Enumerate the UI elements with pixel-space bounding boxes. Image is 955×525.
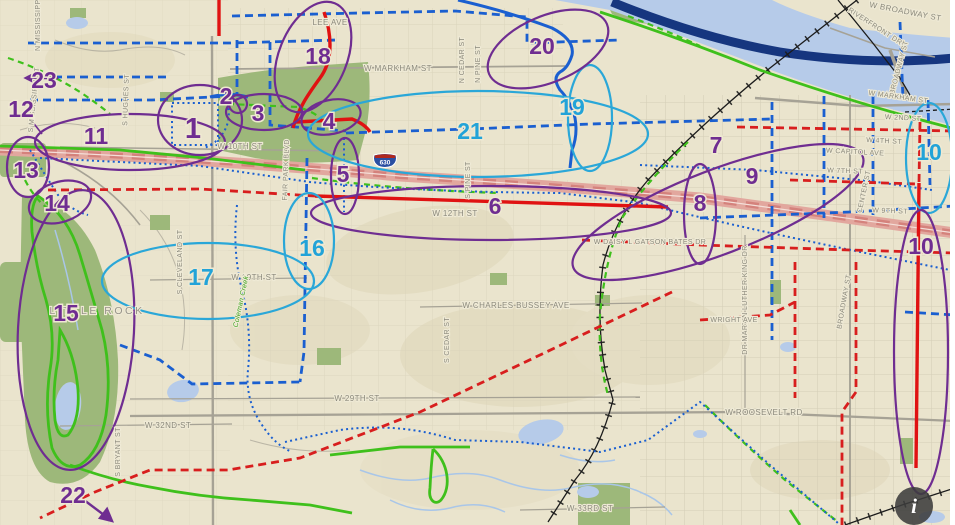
street-label-s-cedar-st: S CEDAR ST xyxy=(444,317,451,363)
street-label-w-32nd-st: W 32ND ST xyxy=(145,421,191,430)
street-label-n-pine-st: N PINE ST xyxy=(475,45,482,83)
street-label-w-10th-st: W 10TH ST xyxy=(217,142,262,151)
info-button[interactable]: i xyxy=(895,487,933,525)
street-label-w-roosevelt-rd: W ROOSEVELT RD xyxy=(725,408,802,417)
annotation-20: 20 xyxy=(529,33,555,59)
annotation-4: 4 xyxy=(323,108,336,134)
street-label-w-19th-st: W 19TH ST xyxy=(231,273,276,282)
annotation-14: 14 xyxy=(44,190,70,216)
annotation-9: 9 xyxy=(746,163,759,189)
street-label-n-cedar-st: N CEDAR ST xyxy=(459,36,466,83)
annotation-8: 8 xyxy=(694,190,707,216)
annotation-19: 19 xyxy=(559,94,585,120)
annotation-13: 13 xyxy=(13,157,39,183)
annotation-16: 16 xyxy=(299,235,325,261)
annotation-2: 2 xyxy=(220,83,233,109)
info-icon: i xyxy=(911,494,917,518)
street-label-lee-ave: LEE AVE xyxy=(312,18,347,27)
annotation-5: 5 xyxy=(337,161,350,187)
annotation-15: 15 xyxy=(53,300,79,326)
annotation-6: 6 xyxy=(489,193,502,219)
street-label-wright-ave: WRIGHT AVE xyxy=(710,317,757,324)
street-label-w-7th-st: W 7TH ST xyxy=(827,167,863,175)
street-label-s-bryant-st: S BRYANT ST xyxy=(115,427,122,477)
annotation-10-purple: 10 xyxy=(908,233,934,259)
annotation-23: 23 xyxy=(31,67,57,93)
street-label-n-mississippi-st: N MISSISSIPPI ST xyxy=(35,0,42,51)
street-label-w-33rd-st: W 33RD ST xyxy=(567,504,613,513)
street-label-w-markham-st: W MARKHAM ST xyxy=(364,64,432,73)
street-label-s-pine-st: S PINE ST xyxy=(465,161,472,199)
street-label-s-cleveland-st: S CLEVELAND ST xyxy=(177,229,184,294)
annotation-7: 7 xyxy=(710,132,723,158)
street-label-w-9th-st: W 9TH ST xyxy=(872,207,908,215)
annotation-10-cyan: 10 xyxy=(916,139,942,165)
annotation-21: 21 xyxy=(457,118,483,144)
street-label-w-charles-bussey-ave: W CHARLES BUSSEY AVE xyxy=(462,301,569,310)
right-edge-margin xyxy=(950,0,955,525)
street-label-daisy-bates-dr: W DAISY L GATSON BATES DR xyxy=(594,239,706,246)
annotation-18: 18 xyxy=(305,43,331,69)
annotation-1: 1 xyxy=(185,113,201,145)
annotation-11: 11 xyxy=(84,123,109,149)
annotation-17: 17 xyxy=(188,264,214,290)
street-label-w-29th-st: W 29TH ST xyxy=(334,394,379,403)
street-label-mlk-dr: DR MARTIN LUTHER KING DR xyxy=(742,245,749,354)
street-label-w-12th-st: W 12TH ST xyxy=(432,209,477,218)
annotation-22: 22 xyxy=(60,482,86,508)
map-canvas[interactable]: 630 LEE AVE W MARKHAM ST N CEDAR xyxy=(0,0,955,525)
i630-shield: 630 xyxy=(374,154,397,168)
annotation-3: 3 xyxy=(252,100,265,126)
annotation-12: 12 xyxy=(8,96,34,122)
map-layers: 630 LEE AVE W MARKHAM ST N CEDAR xyxy=(0,0,955,525)
i630-shield-number: 630 xyxy=(380,160,391,167)
